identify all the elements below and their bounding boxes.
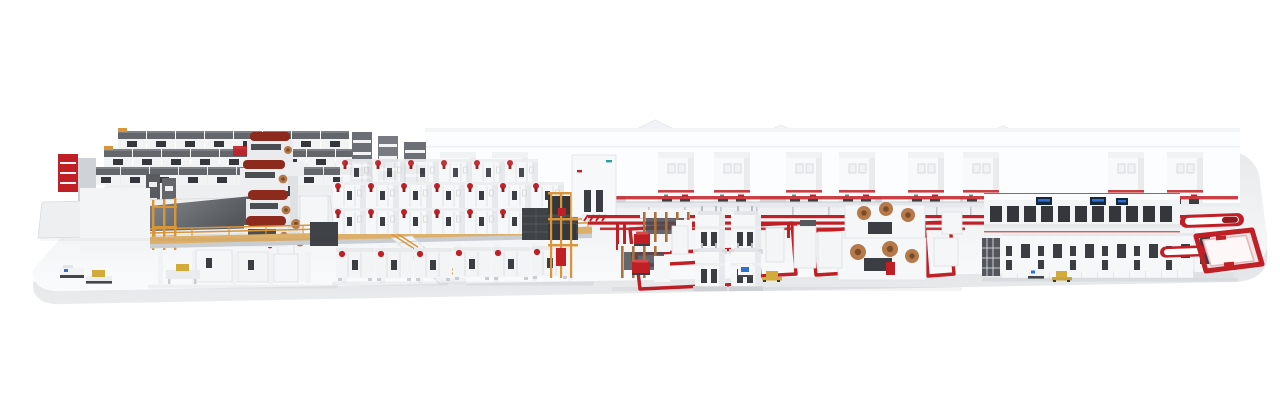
deck-tier-back	[340, 159, 538, 185]
side-cabinet	[818, 232, 842, 268]
capsule-conveyor	[1180, 213, 1244, 228]
winder-front	[838, 238, 926, 280]
dark-end-panel	[310, 222, 338, 246]
splicer-unit	[247, 132, 293, 162]
side-cabinet	[942, 212, 962, 234]
side-cabinet	[934, 238, 958, 266]
side-cabinet	[794, 226, 816, 268]
rack-orange-cap	[118, 128, 127, 132]
finishing-line-back	[984, 193, 1180, 236]
red-mini-cabinet	[886, 262, 895, 275]
side-cabinet	[766, 228, 784, 262]
side-cabinet	[672, 226, 688, 254]
mezz-backwall	[80, 188, 150, 252]
side-table	[800, 220, 816, 226]
winder-back	[845, 202, 925, 241]
control-screen	[1036, 197, 1052, 205]
splicer-unit	[240, 160, 288, 191]
eave-line	[425, 146, 1240, 147]
deck-tier-upper	[333, 182, 564, 208]
screen-box	[738, 264, 753, 277]
red-cart	[632, 260, 650, 276]
finishing-agv	[1028, 269, 1044, 279]
production-line-render: Industrial production line 3D render Iso…	[0, 0, 1280, 405]
racetrack-loop	[1196, 230, 1262, 271]
process-decks: Double-deck process line modules with re…	[310, 159, 578, 283]
tower-cabinet	[572, 155, 616, 222]
render-canvas: Industrial production line 3D render Iso…	[0, 0, 1280, 405]
eave-band	[425, 128, 1240, 132]
deck-tier-mid	[333, 208, 531, 234]
red-cart	[634, 232, 650, 247]
under-deck-cabinets	[196, 250, 298, 282]
rack-orange-cap	[104, 146, 113, 150]
control-screen	[1090, 197, 1106, 205]
control-screen	[1116, 198, 1128, 205]
